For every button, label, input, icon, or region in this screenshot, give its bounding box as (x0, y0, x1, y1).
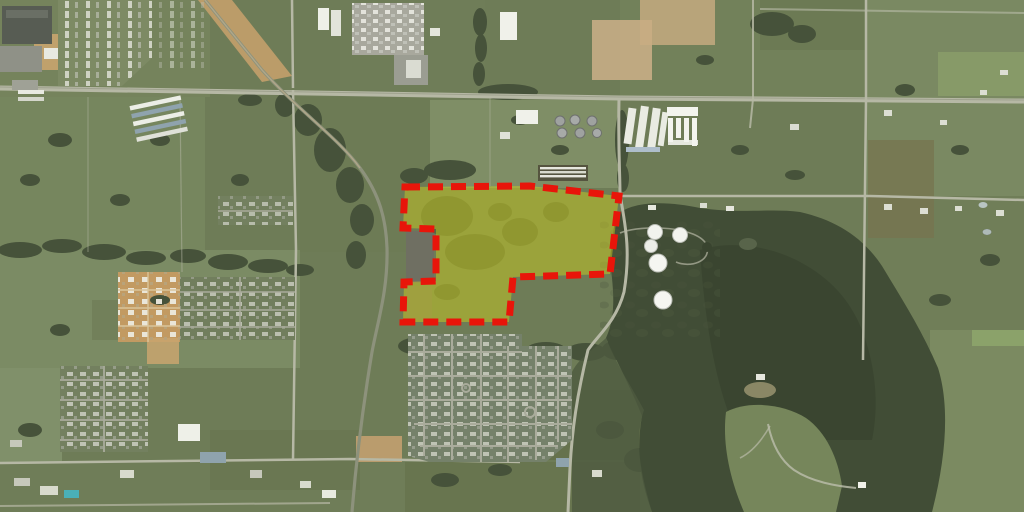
storage-tank (673, 228, 688, 243)
satellite-map-canvas (0, 0, 1024, 512)
subdivision-south-central (408, 334, 572, 462)
construction-site (118, 272, 180, 342)
subdivision-mid-left (218, 196, 293, 225)
storage-tank (654, 291, 672, 309)
storage-tank (648, 225, 663, 240)
subdivision-west-central (180, 277, 295, 340)
satellite-map (0, 0, 1024, 512)
storage-tank (645, 240, 658, 253)
warehouse-white (500, 12, 517, 40)
swimming-pool (64, 490, 79, 498)
subdivision-southwest (60, 366, 148, 452)
chicken-houses (538, 165, 588, 181)
salvage-yard (352, 3, 424, 55)
storage-tank (649, 254, 667, 272)
